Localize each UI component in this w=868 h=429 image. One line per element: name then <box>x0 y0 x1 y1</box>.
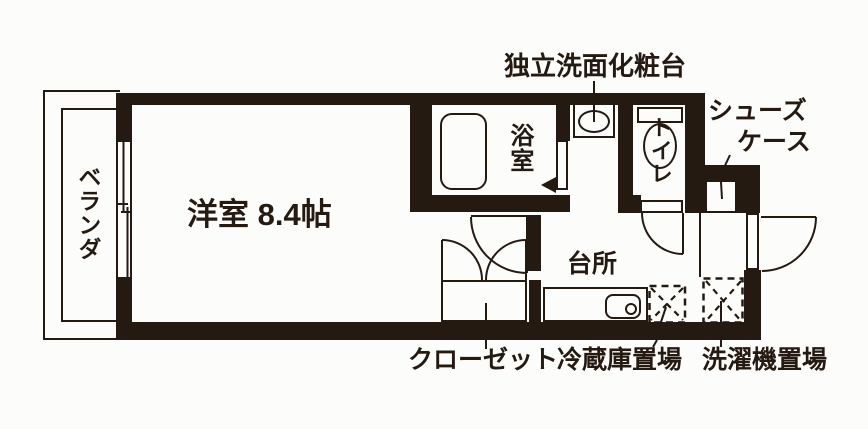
bathroom-door-triangle <box>541 177 556 193</box>
floor-plan: ベランダ <box>0 0 868 429</box>
washer-space-label: 洗濯機置場 <box>702 347 827 374</box>
fridge-leader <box>661 307 666 322</box>
balcony-label: ベランダ <box>75 165 100 261</box>
entrance-door-arc <box>762 217 816 271</box>
shoecase-leader <box>720 155 730 176</box>
bathroom-label: 浴室 <box>506 123 532 173</box>
vanity-label: 独立洗面化粧台 <box>504 52 686 80</box>
fridge-space-label: 冷蔵庫置場 <box>557 347 682 374</box>
main-room-label: 洋室 8.4帖 <box>187 198 332 231</box>
shoecase-leader <box>721 182 722 199</box>
toilet-label: トイレ <box>648 116 672 185</box>
shoe-case-label-line1: シューズ <box>708 98 807 125</box>
toilet-door-arc <box>642 213 683 254</box>
shoe-case-label-line2: ケース <box>737 129 811 156</box>
closet-door-arc-left <box>442 240 482 280</box>
closet-door-arc-right <box>486 240 526 280</box>
kitchen-label: 台所 <box>567 251 617 278</box>
closet-label: クローゼット <box>408 347 558 374</box>
